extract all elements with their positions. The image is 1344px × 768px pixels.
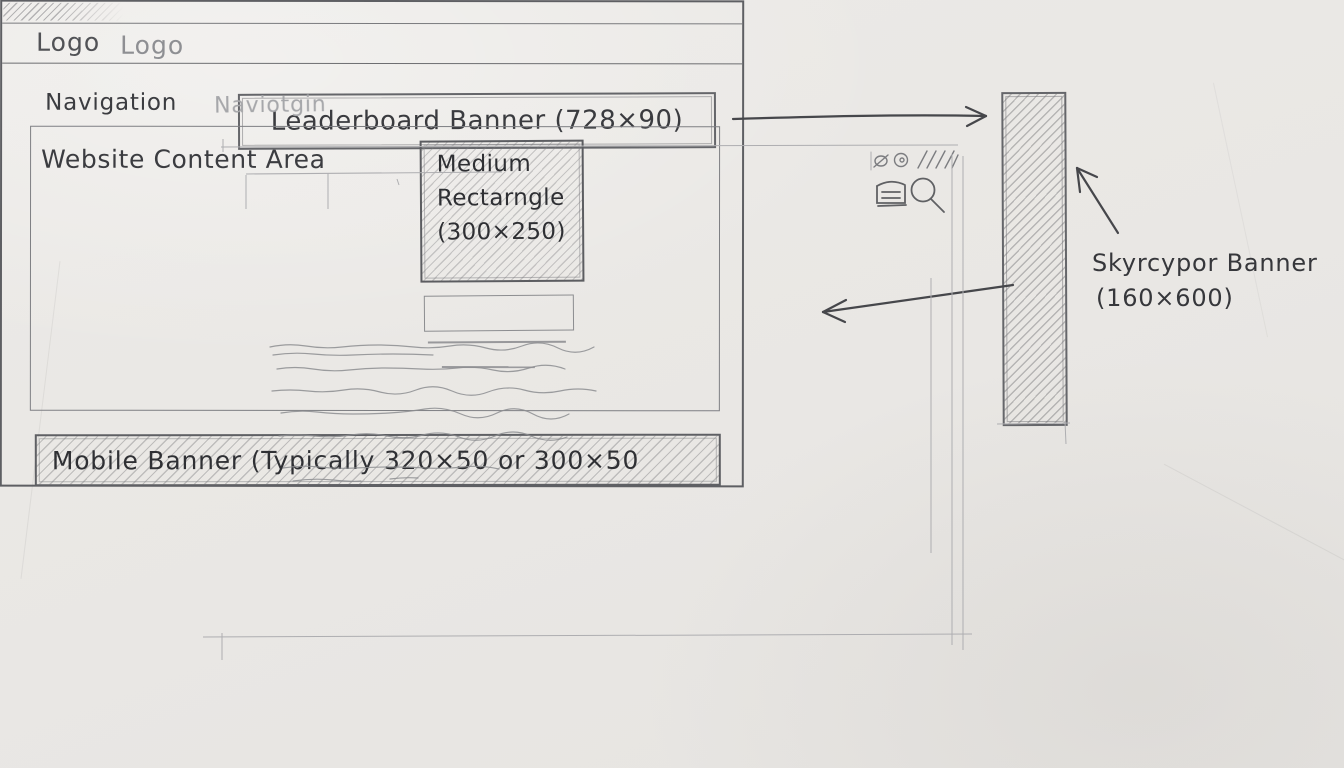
mobile-banner-label: Mobile Banner (Typically 320×50 or 300×5… xyxy=(37,445,639,475)
browser-titlebar xyxy=(2,2,742,25)
paper-background: Leaderboard Banner (728×90) Skyrcypor Ba… xyxy=(0,0,1344,768)
medium-rectangle-line2: Rectarngle xyxy=(437,181,582,216)
window-control-icons xyxy=(871,151,958,170)
medium-rectangle-line3: (300×250) xyxy=(437,215,582,250)
menu-icon xyxy=(877,182,906,206)
content-area: Website Content Area Medium Rectarngle (… xyxy=(30,126,720,412)
arrow-leaderboard-to-skyscraper xyxy=(733,107,986,126)
paper-crease xyxy=(1164,464,1344,578)
arrow-skyscraper-to-medium-rect xyxy=(823,285,1013,322)
logo-ghost: Logo xyxy=(120,31,184,60)
placeholder-box xyxy=(424,295,574,332)
skyscraper-banner xyxy=(1001,92,1067,426)
skyscraper-banner-label: Skyrcypor Banner (160×600) xyxy=(1092,246,1318,316)
browser-window: Logo Logo Navigation Naviotgin Website C… xyxy=(0,0,744,487)
search-icon xyxy=(912,179,945,213)
placeholder-line xyxy=(442,366,535,368)
skyscraper-label-text: Skyrcypor Banner xyxy=(1092,246,1318,281)
mobile-banner: Mobile Banner (Typically 320×50 or 300×5… xyxy=(35,434,721,487)
medium-rectangle-label: Medium Rectarngle (300×250) xyxy=(422,142,583,250)
nav-label-ghost: Naviotgin xyxy=(214,92,327,118)
medium-rectangle-banner: Medium Rectarngle (300×250) xyxy=(420,140,585,283)
header-divider xyxy=(2,63,742,65)
titlebar-hatch xyxy=(3,3,123,21)
medium-rectangle-line1: Medium xyxy=(437,147,582,182)
logo: Logo xyxy=(36,28,100,57)
skyscraper-label-size: (160×600) xyxy=(1092,281,1318,316)
placeholder-line xyxy=(428,341,566,344)
arrow-label-to-skyscraper xyxy=(1077,168,1118,233)
content-heading: Website Content Area xyxy=(41,145,326,174)
nav-label: Navigation xyxy=(45,90,177,116)
